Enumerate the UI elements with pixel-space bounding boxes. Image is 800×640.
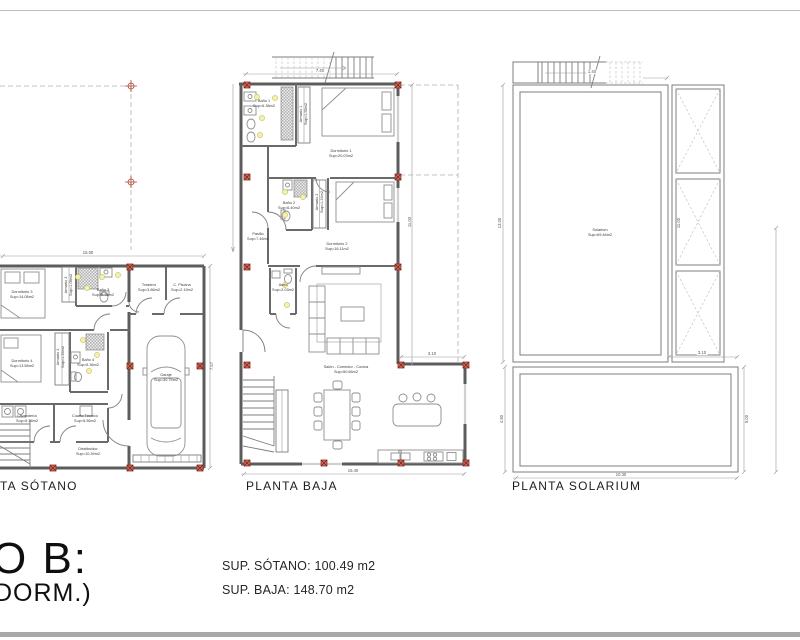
sheet-bottom-divider [0, 632, 800, 637]
dim-solarium-mid: 11.00 [677, 217, 681, 230]
baja-stair-top [272, 52, 374, 83]
baja-bath-fixtures [244, 87, 307, 284]
drawing-sheet: Dormitorio 3 Sup=14.08m2 Armario 3 Sup=1… [0, 0, 800, 640]
dim-solarium-right-lower: 5.00 [745, 414, 749, 425]
solarium-dims [501, 76, 778, 480]
room-label-salon-comedor-cocina: Salón - Comedor - Cocina Sup=50.66m2 [324, 365, 369, 375]
baja-dining-set [314, 381, 360, 449]
room-label-armario-4: Armario 4 Sup=1.34m2 [56, 346, 66, 368]
room-label-solarium: Solarium Sup=69.48m2 [588, 228, 612, 238]
dim-baja-stair: 7.40 [315, 69, 326, 73]
sotano-stair [0, 420, 30, 468]
plan-title-sotano: TA SÓTANO [0, 479, 78, 493]
room-label-trastero: Trastero Sup=3.86m2 [138, 283, 160, 293]
plan-baja-linework [232, 52, 470, 476]
plan-sotano-linework [0, 80, 212, 471]
titleblock-model-name: O B: [0, 534, 88, 584]
dim-sotano-depth: 7.57 [210, 361, 214, 372]
floorplan-drawing [0, 0, 800, 640]
room-label-c-piscina: C. Piscina Sup=2.19m2 [171, 283, 193, 293]
dim-baja-width: 15.40 [347, 469, 360, 473]
room-label-armario-1: Armario 1 Sup=1.56m2 [299, 103, 309, 125]
room-label-bano-4: Baño 4 Sup=5.36m2 [77, 358, 99, 368]
dim-sotano-width: 15.00 [82, 251, 95, 255]
titleblock-spec-baja: SUP. BAJA: 148.70 m2 [222, 583, 354, 597]
dim-solarium-col: 3.10 [697, 351, 708, 355]
room-label-pasillo: Pasillo Sup=7.46m2 [247, 232, 269, 242]
titleblock-spec-sotano: SUP. SÓTANO: 100.49 m2 [222, 559, 375, 573]
titleblock-model-subtitle: DORM.) [0, 579, 92, 608]
baja-kitchen [378, 393, 463, 463]
solarium-stair [513, 56, 643, 88]
plan-title-solarium: PLANTA SOLARIUM [512, 479, 641, 493]
baja-stair-bottom [243, 376, 288, 452]
room-label-lavanderia: Lavandería Sup=5.36m2 [16, 414, 38, 424]
room-label-armario-3: Armario 3 Sup=1.06m2 [64, 274, 74, 296]
dim-solarium-left-lower: 4.80 [500, 414, 504, 425]
room-label-aseo: Aseo Sup=2.03m2 [272, 283, 294, 293]
plan-title-baja: PLANTA BAJA [246, 479, 338, 493]
dim-solarium-left: 13.00 [498, 217, 502, 230]
room-label-dormitorio-1: Dormitorio 1 Sup=20.03m2 [329, 149, 353, 159]
room-label-dormitorio-4: Dormitorio 4 Sup=13.58m2 [10, 359, 34, 369]
room-label-cuarto-tecnico: Cuarto Técnico Sup=5.56m2 [72, 414, 98, 424]
room-label-distribuidor: Distribuidor Sup=10.39m2 [76, 447, 100, 457]
baja-living-furniture [309, 267, 381, 354]
plan-solarium-linework [501, 56, 778, 480]
garage-car [143, 336, 189, 456]
solarium-walls [513, 85, 738, 472]
dim-solarium-stair: 1.40 [587, 70, 598, 74]
room-label-garaje: Garaje Sup=30.75m2 [154, 373, 178, 383]
room-label-bano-3: Baño 3 Sup=5.36m2 [92, 288, 114, 298]
room-label-bano-1: Baño 1 Sup=6.38m2 [253, 99, 275, 109]
room-label-dormitorio-3: Dormitorio 3 Sup=14.08m2 [10, 290, 34, 300]
room-label-dormitorio-2: Dormitorio 2 Sup=16.11m2 [325, 242, 349, 252]
dim-baja-right: 11.00 [408, 216, 412, 229]
room-label-armario-2: Armario 2 Sup=1.24m2 [315, 191, 325, 213]
dim-baja-ext: 3.10 [427, 352, 438, 356]
room-label-bano-2: Baño 2 Sup=6.40m2 [278, 201, 300, 211]
dim-solarium-width: 10.30 [615, 473, 628, 477]
